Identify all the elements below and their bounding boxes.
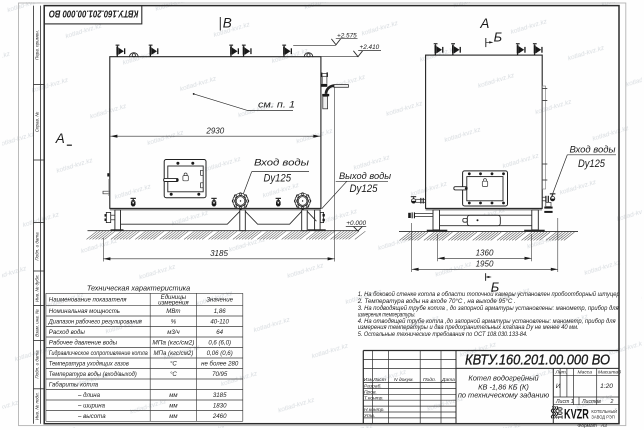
svg-text:Dy125: Dy125 — [264, 172, 292, 184]
svg-text:Инв. № дубл.: Инв. № дубл. — [35, 274, 40, 302]
svg-text:А: А — [55, 131, 65, 146]
svg-text:0,6 (6,0): 0,6 (6,0) — [208, 339, 231, 346]
svg-text:Инв. № подл.: Инв. № подл. — [35, 392, 40, 420]
svg-text:Температура воды (вход/выход): Температура воды (вход/выход) — [49, 371, 137, 378]
svg-text:МПа (кгс/см2): МПа (кгс/см2) — [152, 339, 194, 346]
svg-text:Формат: Формат — [577, 423, 596, 429]
svg-text:1: 1 — [571, 399, 574, 405]
svg-text:KVZR: KVZR — [564, 405, 589, 421]
svg-text:по техническому заданию: по техническому заданию — [458, 391, 550, 400]
svg-text:1:20: 1:20 — [600, 383, 613, 390]
svg-text:Лит.: Лит. — [555, 370, 567, 376]
svg-text:°С: °С — [170, 360, 177, 367]
svg-text:И: И — [556, 383, 561, 390]
svg-text:Лист: Лист — [372, 377, 386, 383]
svg-text:м3/ч: м3/ч — [167, 329, 180, 336]
svg-text:– высота: – высота — [77, 413, 106, 420]
svg-text:Вход воды: Вход воды — [254, 157, 309, 168]
svg-text:+2.410: +2.410 — [360, 44, 380, 51]
svg-text:В: В — [223, 15, 232, 30]
svg-text:40-110: 40-110 — [210, 318, 229, 325]
svg-text:1360: 1360 — [476, 248, 494, 257]
svg-text:2. Температура воды на входе: 2. Температура воды на входе 70°С , на в… — [357, 298, 516, 305]
svg-text:0,06 (0,6): 0,06 (0,6) — [207, 350, 233, 357]
svg-text:измерения: измерения — [158, 300, 189, 307]
svg-text:Выход воды: Выход воды — [339, 170, 391, 181]
svg-text:Листов: Листов — [581, 399, 601, 405]
svg-text:1,86: 1,86 — [214, 308, 226, 315]
svg-text:Номинальная мощность: Номинальная мощность — [49, 308, 120, 315]
svg-text:А3: А3 — [600, 423, 607, 429]
svg-text:Масштаб: Масштаб — [598, 370, 621, 376]
svg-text:+2.575: +2.575 — [337, 32, 357, 39]
svg-text:мм: мм — [169, 402, 178, 409]
svg-text:Взам. инв. №: Взам. инв. № — [35, 309, 40, 337]
svg-text:64: 64 — [216, 329, 223, 336]
svg-text:КВТУ.160.201.00.000 ВО: КВТУ.160.201.00.000 ВО — [49, 7, 139, 18]
svg-text:°С: °С — [170, 371, 177, 378]
svg-text:N докум.: N докум. — [394, 377, 414, 383]
svg-text:Утв.: Утв. — [364, 413, 375, 419]
svg-text:мм: мм — [169, 392, 178, 399]
svg-text:Пров.: Пров. — [364, 390, 377, 396]
svg-text:3185: 3185 — [213, 392, 227, 399]
svg-text:Перв. примен.: Перв. примен. — [35, 30, 40, 60]
svg-text:Б: Б — [494, 30, 503, 45]
svg-text:Dy125: Dy125 — [350, 183, 379, 195]
svg-text:не более 280: не более 280 — [201, 360, 239, 367]
svg-text:Лист: Лист — [555, 399, 570, 405]
svg-text:мм: мм — [169, 413, 178, 420]
svg-text:Значение: Значение — [206, 297, 233, 304]
svg-text:МПа (кгс/см2): МПа (кгс/см2) — [153, 350, 193, 357]
svg-text:см. п. 1: см. п. 1 — [258, 100, 295, 111]
svg-text:Котел водогрейный: Котел водогрейный — [468, 374, 538, 383]
svg-text:2460: 2460 — [212, 413, 227, 420]
svg-text:Вход воды: Вход воды — [570, 143, 616, 154]
svg-text:2: 2 — [610, 399, 614, 405]
svg-text:1. На боковой стенке котла в: 1. На боковой стенке котла в области топ… — [358, 291, 621, 298]
svg-text:Подп. и дата: Подп. и дата — [35, 232, 40, 261]
svg-text:– длина: – длина — [77, 392, 101, 399]
svg-text:– ширина: – ширина — [77, 402, 106, 409]
svg-text:Рабочее давление воды: Рабочее давление воды — [49, 339, 118, 346]
svg-text:Подп. и дата: Подп. и дата — [35, 350, 40, 379]
svg-text:Справ. №: Справ. № — [35, 112, 40, 133]
svg-text:Расход воды: Расход воды — [49, 329, 86, 336]
svg-text:Т.контр.: Т.контр. — [364, 395, 384, 401]
svg-text:Разраб.: Разраб. — [364, 384, 382, 390]
svg-text:2930: 2930 — [205, 126, 224, 135]
svg-text:%: % — [171, 318, 177, 325]
svg-text:КВТУ.160.201.00.000 ВО: КВТУ.160.201.00.000 ВО — [465, 351, 610, 368]
svg-text:Температура уходящих газов: Температура уходящих газов — [49, 360, 129, 367]
svg-text:Dy125: Dy125 — [578, 158, 606, 170]
svg-text:Техническая характеристика: Техническая характеристика — [87, 283, 190, 292]
svg-text:Подп.: Подп. — [423, 377, 436, 383]
svg-text:+0.000: +0.000 — [346, 220, 366, 227]
svg-text:Масса: Масса — [578, 370, 593, 376]
svg-text:5. Остальные технические треб: 5. Остальные технические требования по О… — [358, 331, 528, 338]
svg-text:КОТЕЛЬНЫЙ: КОТЕЛЬНЫЙ — [591, 409, 617, 414]
svg-text:Н.контр.: Н.контр. — [364, 407, 385, 413]
svg-text:ЗАВОД РЭП: ЗАВОД РЭП — [591, 414, 614, 419]
svg-text:1830: 1830 — [213, 402, 227, 409]
svg-text:1950: 1950 — [476, 259, 494, 268]
svg-text:70/95: 70/95 — [212, 371, 228, 378]
svg-text:Дата: Дата — [441, 377, 455, 383]
svg-text:3185: 3185 — [210, 249, 228, 258]
svg-text:МВт: МВт — [166, 308, 180, 315]
svg-text:Гидравлическое сопротивление к: Гидравлическое сопротивление котла — [49, 350, 149, 357]
svg-text:Диапазон рабочего регулировани: Диапазон рабочего регулирования — [48, 318, 143, 325]
svg-text:Габариты котла: Габариты котла — [49, 381, 99, 388]
svg-text:А: А — [479, 16, 489, 31]
svg-text:Наименование показателя: Наименование показателя — [49, 297, 127, 304]
